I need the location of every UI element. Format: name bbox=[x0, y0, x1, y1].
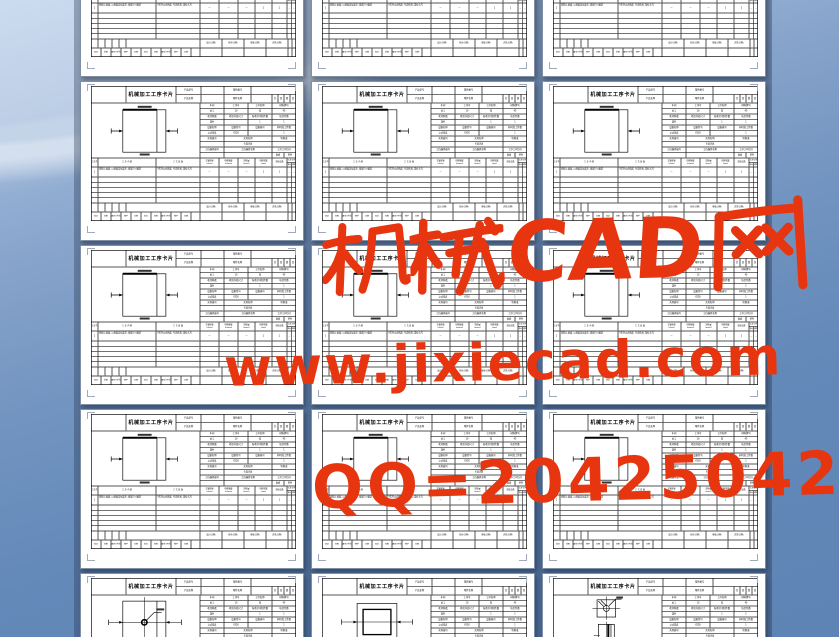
process-card: 机械加工工序卡片产品型号零件图号产品名称零件名称共页第页 车间工序号工序名称材料… bbox=[543, 0, 765, 76]
text-boundary-crop-mark bbox=[519, 62, 527, 69]
text-boundary-crop-mark bbox=[549, 554, 557, 561]
process-card: 机械加工工序卡片产品型号零件图号产品名称零件名称共页第页 车间工序号工序名称材料… bbox=[81, 246, 303, 404]
part-drawing bbox=[322, 595, 431, 637]
process-card: 机械加工工序卡片产品型号零件图号产品名称零件名称共页第页 车间工序号工序名称材料… bbox=[312, 574, 534, 637]
text-boundary-crop-mark bbox=[318, 554, 326, 561]
card-title: 机械加工工序卡片 bbox=[357, 578, 407, 595]
text-boundary-crop-mark bbox=[750, 62, 758, 69]
card-title: 机械加工工序卡片 bbox=[126, 250, 176, 267]
text-boundary-crop-mark bbox=[750, 84, 758, 91]
text-boundary-crop-mark bbox=[318, 84, 326, 91]
text-boundary-crop-mark bbox=[318, 248, 326, 255]
part-drawing bbox=[553, 103, 662, 158]
part-drawing bbox=[322, 431, 431, 486]
card-title: 机械加工工序卡片 bbox=[357, 414, 407, 431]
part-drawing bbox=[553, 431, 662, 486]
page-thumbnail[interactable]: 机械加工工序卡片产品型号零件图号产品名称零件名称共页第页 车间工序号工序名称材料… bbox=[311, 409, 535, 569]
text-boundary-crop-mark bbox=[288, 62, 296, 69]
text-boundary-crop-mark bbox=[549, 390, 557, 397]
card-title: 机械加工工序卡片 bbox=[126, 578, 176, 595]
part-drawing bbox=[91, 431, 200, 486]
card-title: 机械加工工序卡片 bbox=[588, 578, 638, 595]
text-boundary-crop-mark bbox=[288, 554, 296, 561]
text-boundary-crop-mark bbox=[87, 576, 95, 583]
text-boundary-crop-mark bbox=[750, 576, 758, 583]
card-title: 机械加工工序卡片 bbox=[357, 250, 407, 267]
page-thumbnail[interactable]: 机械加工工序卡片产品型号零件图号产品名称零件名称共页第页 车间工序号工序名称材料… bbox=[542, 245, 766, 405]
page-thumbnail[interactable]: 机械加工工序卡片产品型号零件图号产品名称零件名称共页第页 车间工序号工序名称材料… bbox=[542, 409, 766, 569]
part-drawing bbox=[91, 103, 200, 158]
process-card: 机械加工工序卡片产品型号零件图号产品名称零件名称共页第页 车间工序号工序名称材料… bbox=[81, 410, 303, 568]
page-thumbnail[interactable]: 机械加工工序卡片产品型号零件图号产品名称零件名称共页第页 车间工序号工序名称材料… bbox=[80, 81, 304, 241]
process-card: 机械加工工序卡片产品型号零件图号产品名称零件名称共页第页 车间工序号工序名称材料… bbox=[312, 410, 534, 568]
text-boundary-crop-mark bbox=[549, 226, 557, 233]
text-boundary-crop-mark bbox=[87, 390, 95, 397]
text-boundary-crop-mark bbox=[318, 412, 326, 419]
text-boundary-crop-mark bbox=[318, 226, 326, 233]
process-card: 机械加工工序卡片产品型号零件图号产品名称零件名称共页第页 车间工序号工序名称材料… bbox=[312, 246, 534, 404]
page-thumbnail[interactable]: 机械加工工序卡片产品型号零件图号产品名称零件名称共页第页 车间工序号工序名称材料… bbox=[542, 573, 766, 637]
part-drawing bbox=[553, 267, 662, 322]
text-boundary-crop-mark bbox=[318, 62, 326, 69]
text-boundary-crop-mark bbox=[87, 84, 95, 91]
text-boundary-crop-mark bbox=[288, 576, 296, 583]
part-drawing bbox=[553, 595, 662, 637]
text-boundary-crop-mark bbox=[549, 412, 557, 419]
text-boundary-crop-mark bbox=[288, 226, 296, 233]
text-boundary-crop-mark bbox=[87, 226, 95, 233]
card-title: 机械加工工序卡片 bbox=[588, 250, 638, 267]
text-boundary-crop-mark bbox=[750, 226, 758, 233]
process-card: 机械加工工序卡片产品型号零件图号产品名称零件名称共页第页 车间工序号工序名称材料… bbox=[543, 246, 765, 404]
text-boundary-crop-mark bbox=[519, 554, 527, 561]
page-thumbnail[interactable]: 机械加工工序卡片产品型号零件图号产品名称零件名称共页第页 车间工序号工序名称材料… bbox=[311, 0, 535, 77]
part-drawing bbox=[322, 267, 431, 322]
page-thumbnail[interactable]: 机械加工工序卡片产品型号零件图号产品名称零件名称共页第页 车间工序号工序名称材料… bbox=[542, 81, 766, 241]
text-boundary-crop-mark bbox=[549, 84, 557, 91]
text-boundary-crop-mark bbox=[318, 576, 326, 583]
page-thumbnail[interactable]: 机械加工工序卡片产品型号零件图号产品名称零件名称共页第页 车间工序号工序名称材料… bbox=[80, 409, 304, 569]
card-title: 机械加工工序卡片 bbox=[126, 86, 176, 103]
text-boundary-crop-mark bbox=[288, 84, 296, 91]
text-boundary-crop-mark bbox=[519, 412, 527, 419]
text-boundary-crop-mark bbox=[519, 248, 527, 255]
process-card: 机械加工工序卡片产品型号零件图号产品名称零件名称共页第页 车间工序号工序名称材料… bbox=[543, 82, 765, 240]
text-boundary-crop-mark bbox=[750, 412, 758, 419]
page-thumbnail[interactable]: 机械加工工序卡片产品型号零件图号产品名称零件名称共页第页 车间工序号工序名称材料… bbox=[80, 0, 304, 77]
text-boundary-crop-mark bbox=[519, 576, 527, 583]
text-boundary-crop-mark bbox=[288, 390, 296, 397]
text-boundary-crop-mark bbox=[288, 248, 296, 255]
text-boundary-crop-mark bbox=[288, 412, 296, 419]
process-card: 机械加工工序卡片产品型号零件图号产品名称零件名称共页第页 车间工序号工序名称材料… bbox=[543, 410, 765, 568]
text-boundary-crop-mark bbox=[87, 62, 95, 69]
part-drawing bbox=[91, 595, 200, 637]
page-thumbnail[interactable]: 机械加工工序卡片产品型号零件图号产品名称零件名称共页第页 车间工序号工序名称材料… bbox=[311, 81, 535, 241]
text-boundary-crop-mark bbox=[519, 84, 527, 91]
process-card: 机械加工工序卡片产品型号零件图号产品名称零件名称共页第页 车间工序号工序名称材料… bbox=[81, 0, 303, 76]
page-thumbnail[interactable]: 机械加工工序卡片产品型号零件图号产品名称零件名称共页第页 车间工序号工序名称材料… bbox=[542, 0, 766, 77]
card-title: 机械加工工序卡片 bbox=[588, 414, 638, 431]
text-boundary-crop-mark bbox=[87, 412, 95, 419]
part-drawing bbox=[322, 103, 431, 158]
page-thumbnail[interactable]: 机械加工工序卡片产品型号零件图号产品名称零件名称共页第页 车间工序号工序名称材料… bbox=[80, 245, 304, 405]
text-boundary-crop-mark bbox=[549, 248, 557, 255]
process-card: 机械加工工序卡片产品型号零件图号产品名称零件名称共页第页 车间工序号工序名称材料… bbox=[312, 82, 534, 240]
document-pages-preview: 机械加工工序卡片产品型号零件图号产品名称零件名称共页第页 车间工序号工序名称材料… bbox=[0, 0, 839, 637]
page-thumbnail[interactable]: 机械加工工序卡片产品型号零件图号产品名称零件名称共页第页 车间工序号工序名称材料… bbox=[80, 573, 304, 637]
card-title: 机械加工工序卡片 bbox=[588, 86, 638, 103]
text-boundary-crop-mark bbox=[318, 390, 326, 397]
process-card: 机械加工工序卡片产品型号零件图号产品名称零件名称共页第页 车间工序号工序名称材料… bbox=[81, 82, 303, 240]
text-boundary-crop-mark bbox=[549, 576, 557, 583]
process-card: 机械加工工序卡片产品型号零件图号产品名称零件名称共页第页 车间工序号工序名称材料… bbox=[81, 574, 303, 637]
page-thumbnail[interactable]: 机械加工工序卡片产品型号零件图号产品名称零件名称共页第页 车间工序号工序名称材料… bbox=[311, 245, 535, 405]
text-boundary-crop-mark bbox=[87, 248, 95, 255]
text-boundary-crop-mark bbox=[750, 390, 758, 397]
process-card: 机械加工工序卡片产品型号零件图号产品名称零件名称共页第页 车间工序号工序名称材料… bbox=[312, 0, 534, 76]
text-boundary-crop-mark bbox=[87, 554, 95, 561]
text-boundary-crop-mark bbox=[519, 390, 527, 397]
page-thumbnail[interactable]: 机械加工工序卡片产品型号零件图号产品名称零件名称共页第页 车间工序号工序名称材料… bbox=[311, 573, 535, 637]
process-card: 机械加工工序卡片产品型号零件图号产品名称零件名称共页第页 车间工序号工序名称材料… bbox=[543, 574, 765, 637]
text-boundary-crop-mark bbox=[750, 554, 758, 561]
text-boundary-crop-mark bbox=[750, 248, 758, 255]
card-title: 机械加工工序卡片 bbox=[357, 86, 407, 103]
text-boundary-crop-mark bbox=[519, 226, 527, 233]
part-drawing bbox=[91, 267, 200, 322]
card-title: 机械加工工序卡片 bbox=[126, 414, 176, 431]
text-boundary-crop-mark bbox=[549, 62, 557, 69]
